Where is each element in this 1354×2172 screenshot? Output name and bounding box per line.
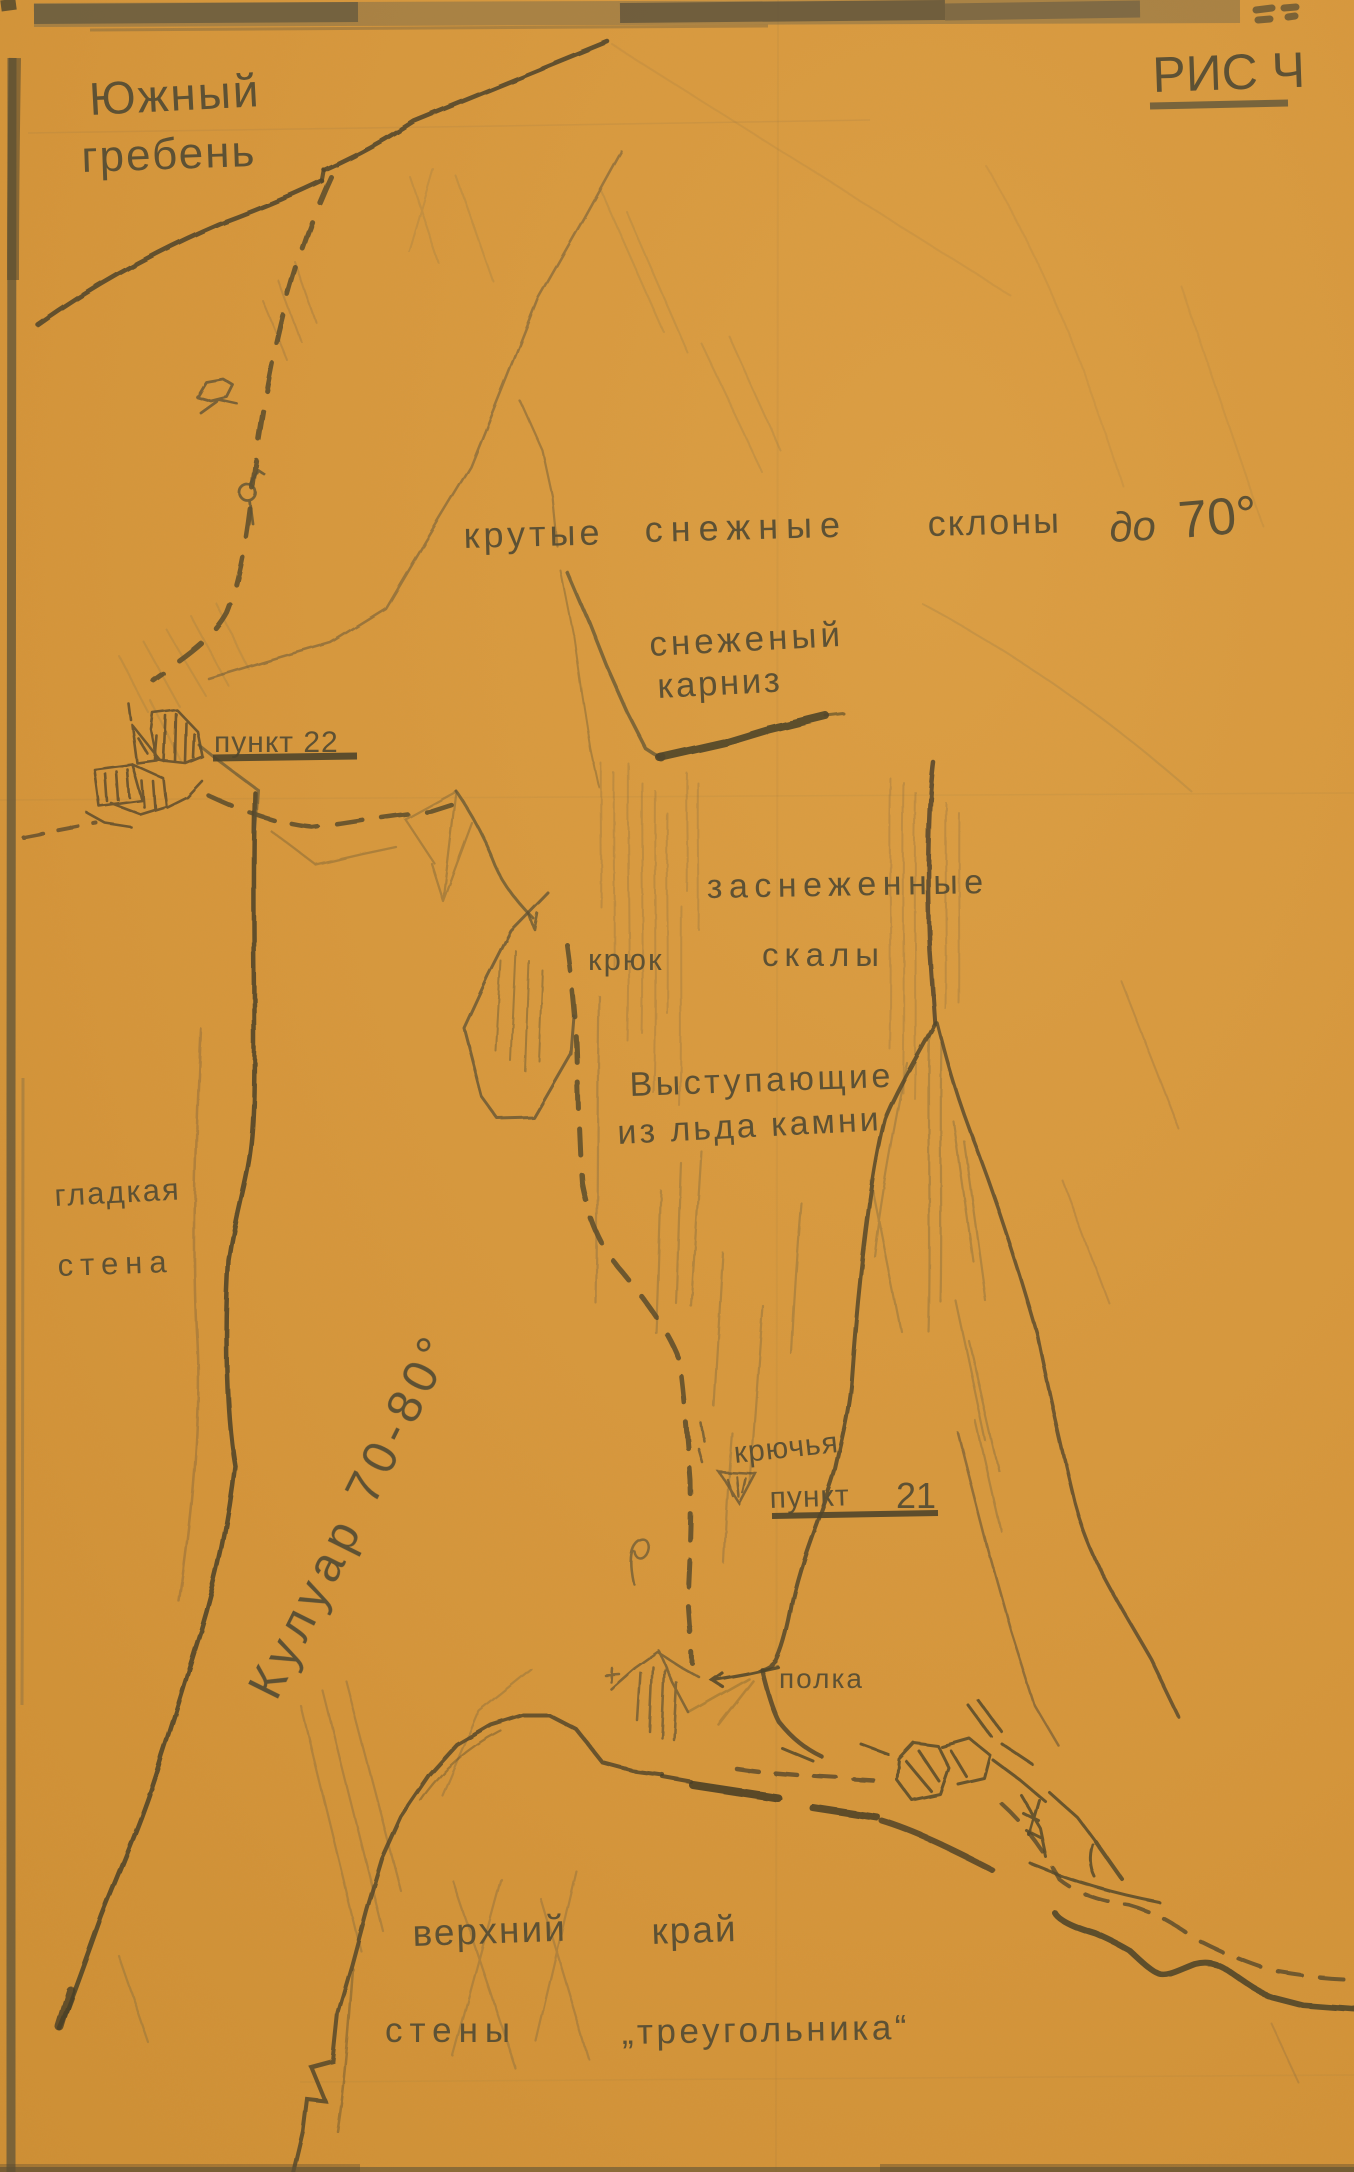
svg-text:склоны: склоны bbox=[927, 500, 1061, 544]
svg-text:крутые: крутые bbox=[463, 511, 604, 556]
svg-text:верхний: верхний bbox=[412, 1908, 568, 1954]
svg-text:скалы: скалы bbox=[762, 936, 885, 973]
svg-text:гребень: гребень bbox=[81, 127, 258, 182]
svg-text:крюк: крюк bbox=[588, 942, 664, 977]
svg-text:карниз: карниз bbox=[656, 661, 783, 706]
svg-text:заснеженные: заснеженные bbox=[706, 863, 989, 906]
svg-text:снежные: снежные bbox=[644, 504, 848, 550]
svg-text:до: до bbox=[1108, 502, 1157, 551]
svg-text:полка: полка bbox=[779, 1663, 864, 1694]
svg-text:70°: 70° bbox=[1176, 485, 1259, 550]
svg-text:РИС Ч: РИС Ч bbox=[1151, 42, 1305, 103]
svg-text:гладкая: гладкая bbox=[54, 1171, 182, 1213]
svg-text:пункт: пункт bbox=[769, 1479, 850, 1515]
svg-text:стена: стена bbox=[57, 1244, 174, 1283]
svg-text:край: край bbox=[651, 1908, 738, 1952]
svg-text:Южный: Южный bbox=[88, 64, 262, 125]
svg-text:стены: стены bbox=[385, 2011, 517, 2050]
svg-text:„треугольника“: „треугольника“ bbox=[621, 2008, 910, 2052]
svg-text:21: 21 bbox=[896, 1475, 936, 1516]
